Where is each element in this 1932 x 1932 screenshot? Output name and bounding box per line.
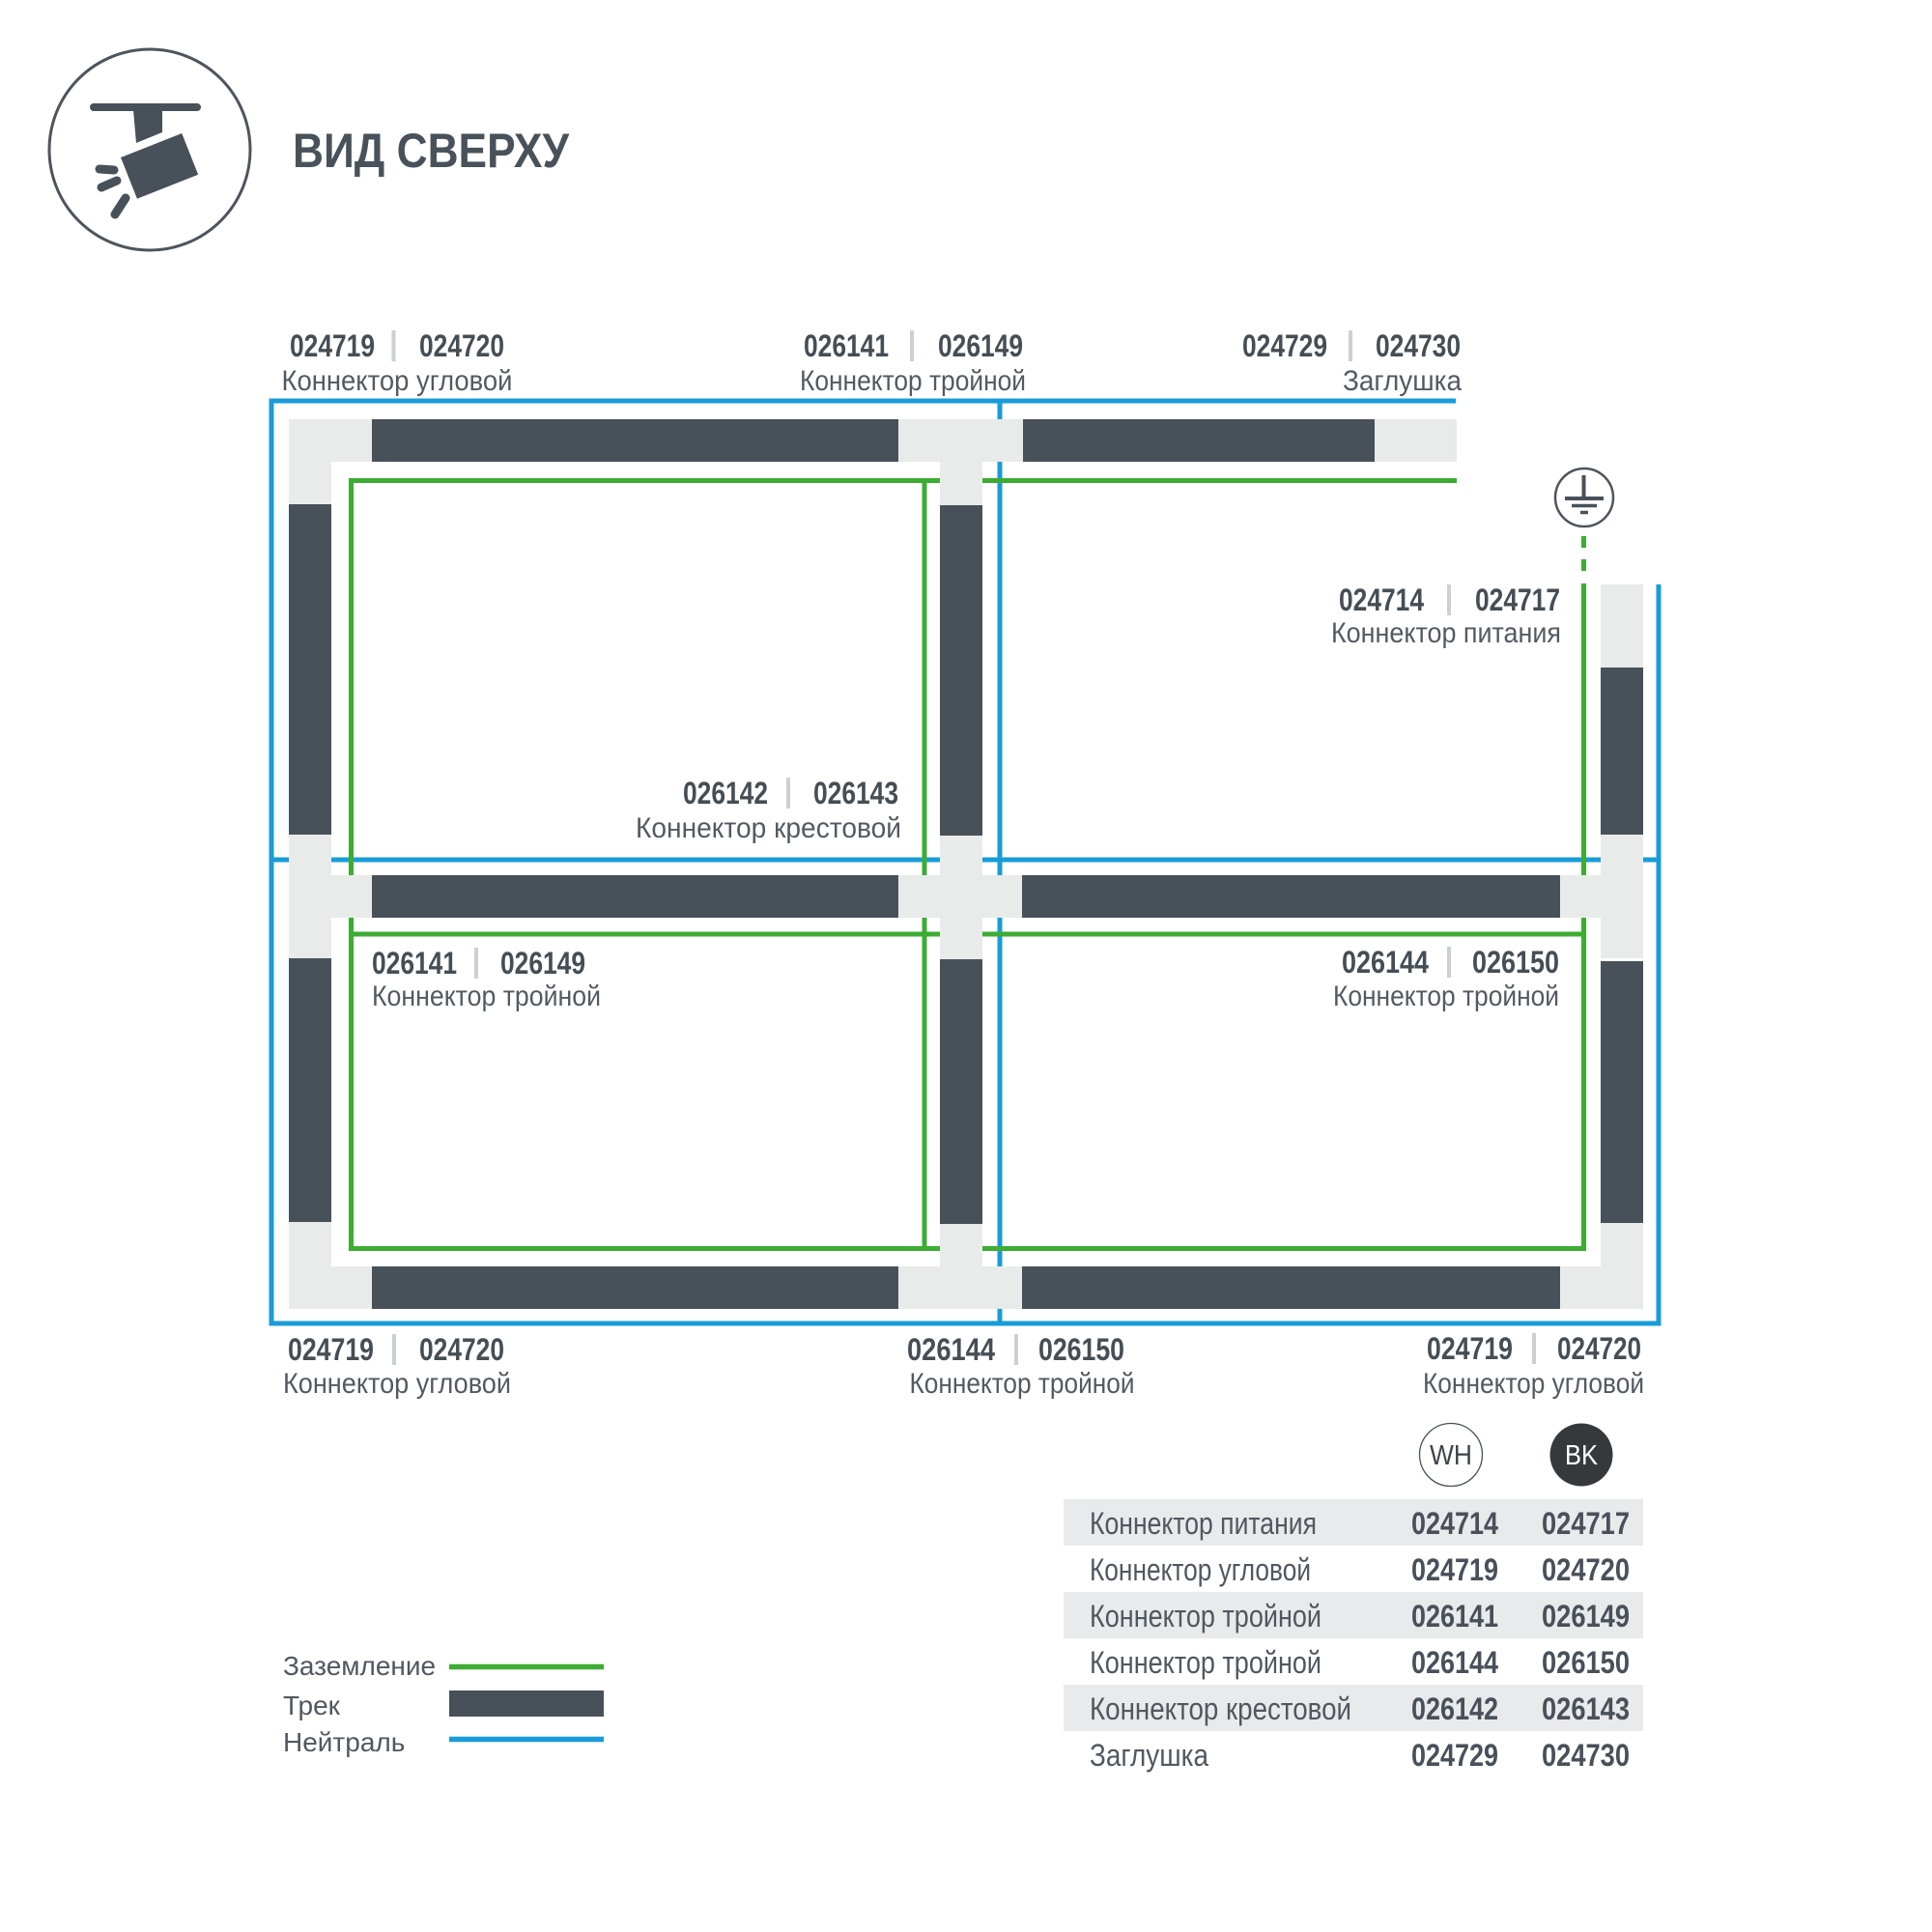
svg-text:024719: 024719 (1427, 1331, 1513, 1366)
svg-text:Коннектор крестовой: Коннектор крестовой (636, 812, 901, 844)
svg-text:026144: 026144 (1342, 945, 1429, 980)
svg-text:BK: BK (1565, 1440, 1599, 1471)
svg-text:026142: 026142 (1411, 1691, 1498, 1726)
svg-text:026150: 026150 (1038, 1332, 1124, 1367)
svg-text:Коннектор угловой: Коннектор угловой (1090, 1552, 1311, 1587)
svg-text:Коннектор питания: Коннектор питания (1331, 617, 1561, 649)
svg-text:026150: 026150 (1472, 945, 1559, 980)
svg-text:ВИД СВЕРХУ: ВИД СВЕРХУ (293, 124, 570, 178)
svg-text:Коннектор тройной: Коннектор тройной (1333, 980, 1559, 1012)
svg-text:WH: WH (1430, 1440, 1472, 1471)
svg-text:024719: 024719 (290, 328, 375, 363)
svg-text:Коннектор угловой: Коннектор угловой (1423, 1368, 1644, 1400)
svg-text:024730: 024730 (1542, 1738, 1630, 1773)
svg-text:024714: 024714 (1411, 1506, 1498, 1541)
svg-text:Заземление: Заземление (283, 1651, 436, 1681)
svg-text:Коннектор крестовой: Коннектор крестовой (1090, 1691, 1351, 1726)
svg-text:024719: 024719 (1411, 1552, 1498, 1587)
svg-text:Коннектор тройной: Коннектор тройной (910, 1368, 1135, 1400)
svg-text:024717: 024717 (1475, 582, 1560, 617)
svg-text:026143: 026143 (1542, 1691, 1630, 1726)
svg-text:Нейтраль: Нейтраль (283, 1727, 405, 1757)
svg-text:Коннектор тройной: Коннектор тройной (800, 365, 1026, 397)
svg-text:024729: 024729 (1242, 328, 1327, 363)
svg-text:026144: 026144 (1411, 1645, 1498, 1680)
svg-text:026149: 026149 (938, 328, 1023, 363)
svg-text:026150: 026150 (1542, 1645, 1630, 1680)
svg-text:026141: 026141 (372, 946, 457, 980)
svg-text:024720: 024720 (1557, 1331, 1641, 1366)
svg-text:026149: 026149 (1542, 1599, 1630, 1634)
svg-text:Коннектор угловой: Коннектор угловой (282, 365, 513, 397)
svg-text:Коннектор питания: Коннектор питания (1090, 1506, 1317, 1541)
svg-text:Коннектор тройной: Коннектор тройной (1090, 1645, 1321, 1680)
svg-text:026142: 026142 (683, 776, 768, 810)
svg-text:Коннектор тройной: Коннектор тройной (1090, 1599, 1321, 1634)
svg-text:024729: 024729 (1411, 1738, 1498, 1773)
svg-text:026149: 026149 (500, 946, 585, 980)
svg-text:026141: 026141 (804, 328, 889, 363)
svg-text:026141: 026141 (1411, 1599, 1498, 1634)
svg-text:Заглушка: Заглушка (1343, 365, 1462, 397)
svg-text:026144: 026144 (907, 1332, 995, 1367)
svg-text:Коннектор угловой: Коннектор угловой (283, 1368, 511, 1400)
svg-text:024720: 024720 (1542, 1552, 1630, 1587)
svg-text:024714: 024714 (1339, 582, 1424, 617)
svg-text:026143: 026143 (813, 776, 898, 810)
svg-text:024717: 024717 (1542, 1506, 1630, 1541)
svg-text:Заглушка: Заглушка (1090, 1738, 1208, 1773)
svg-text:024730: 024730 (1376, 328, 1461, 363)
svg-text:Трек: Трек (283, 1690, 341, 1720)
svg-text:024720: 024720 (419, 1332, 504, 1367)
svg-text:Коннектор тройной: Коннектор тройной (372, 980, 601, 1012)
svg-text:024720: 024720 (419, 328, 504, 363)
svg-text:024719: 024719 (288, 1332, 374, 1367)
